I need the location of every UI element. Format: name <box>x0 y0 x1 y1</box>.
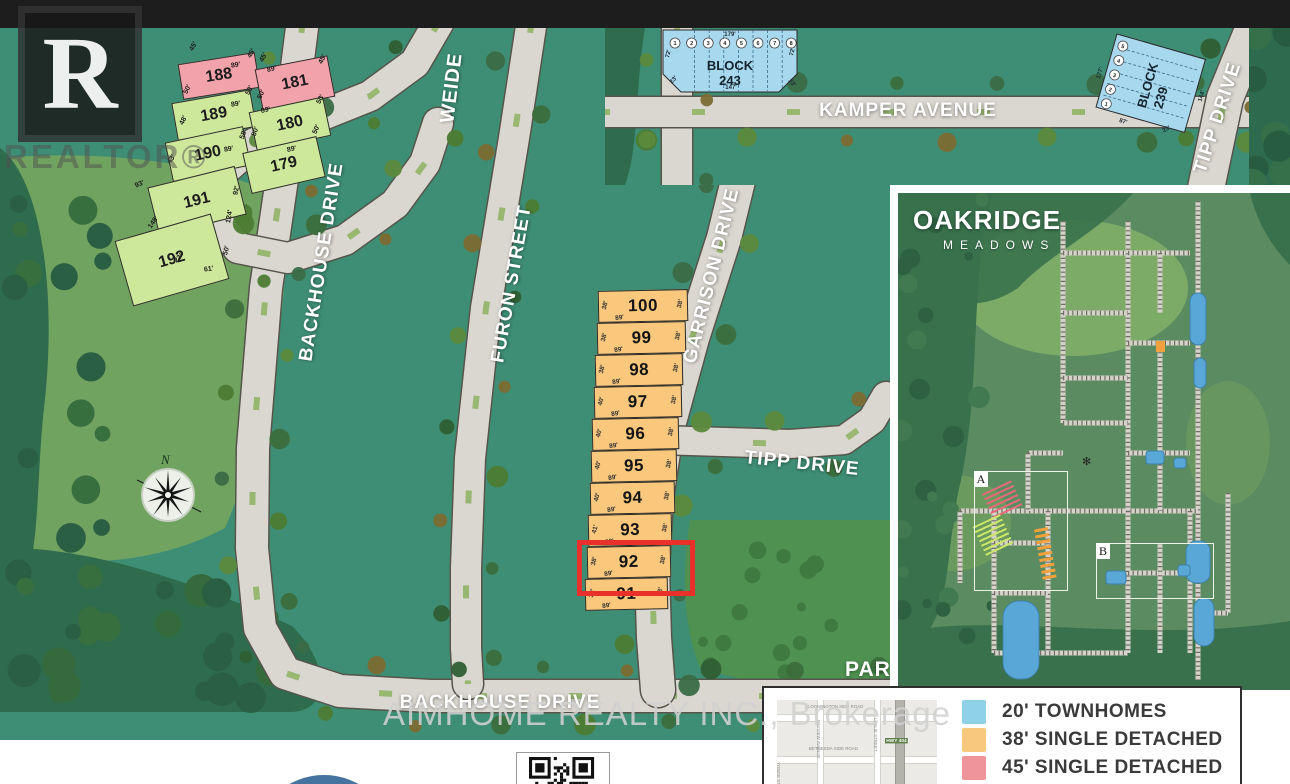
lot-dim-left: 40' <box>593 492 602 502</box>
dimension-label: 61' <box>204 265 214 273</box>
oakridge-meadows-logo: OAKRIDGE MEADOWS <box>913 205 1061 252</box>
legend-swatch <box>962 756 986 780</box>
lot-99: 9938'38'89' <box>596 321 686 355</box>
lot-dim-width: 89' <box>611 410 621 418</box>
lot-number: 98 <box>596 359 683 381</box>
lot-98: 9838'38'89' <box>595 353 684 387</box>
svg-text:BLOCK: BLOCK <box>707 58 754 73</box>
area-a-label: A <box>974 471 988 487</box>
hwy-404-badge: HWY 404 <box>885 738 908 743</box>
lot-number: 99 <box>597 327 685 349</box>
lot-95: 9540'38'89' <box>591 449 678 483</box>
svg-text:N: N <box>160 452 171 467</box>
road-label: YONGE STREET <box>777 762 781 784</box>
svg-text:8: 8 <box>790 41 793 47</box>
street-label-kamper-avenue: KAMPER AVENUE <box>819 100 997 122</box>
realtor-logo-letter: R <box>42 22 117 126</box>
legend-label: 38' SINGLE DETACHED <box>1002 729 1223 751</box>
lot-dim-width: 89' <box>602 602 612 610</box>
lot-number: 97 <box>595 391 681 413</box>
lot-dim-width: 89' <box>615 314 625 322</box>
qr-code <box>516 752 610 784</box>
lot-94: 9440'38'89' <box>589 481 675 515</box>
realtor-logo: R <box>18 6 142 142</box>
lot-dim-right: 38' <box>670 395 679 405</box>
lot-dim-width: 89' <box>608 474 618 482</box>
tree-sliver <box>1249 28 1290 185</box>
park-label: PAR <box>845 658 890 682</box>
svg-text:147': 147' <box>725 85 737 91</box>
area-b-label: B <box>1096 543 1110 559</box>
svg-text:✻: ✻ <box>1082 456 1091 468</box>
svg-text:179': 179' <box>724 32 736 38</box>
lot-dim-left: 38' <box>600 332 609 342</box>
area-box-a: A <box>974 471 1068 591</box>
lot-100: 10038'38'89' <box>598 289 689 323</box>
lot-number: 94 <box>590 487 674 509</box>
svg-text:1: 1 <box>673 41 676 47</box>
highlighted-lot-92-outline <box>577 540 695 596</box>
meadows-logo-text: MEADOWS <box>943 238 1061 252</box>
svg-text:6: 6 <box>756 41 759 47</box>
lot-number: 93 <box>589 519 672 541</box>
lot-number: 96 <box>593 423 678 445</box>
location-road <box>777 756 937 764</box>
compass-rose-icon: N <box>133 452 203 532</box>
site-plan-page: 18818118918019017919119210038'38'89'9938… <box>0 0 1290 784</box>
partial-circle-logo <box>256 775 392 784</box>
top-black-bar <box>0 0 1290 28</box>
lot-dim-width: 89' <box>613 346 623 354</box>
realtor-watermark-text: REALTOR® <box>4 138 209 176</box>
legend-label: 45' SINGLE DETACHED <box>1002 757 1223 779</box>
lot-97: 9740'38'89' <box>593 385 681 419</box>
oakridge-logo-text: OAKRIDGE <box>913 205 1061 236</box>
legend-swatch <box>962 700 986 724</box>
legend-item: 38' SINGLE DETACHED <box>962 728 1223 752</box>
svg-text:3: 3 <box>707 41 710 47</box>
legend-item: 45' SINGLE DETACHED <box>962 756 1223 780</box>
lot-number: 95 <box>592 455 676 477</box>
lot-dim-width: 89' <box>612 378 622 386</box>
lot-96: 9640'38'89' <box>592 417 679 451</box>
legend-swatch <box>962 728 986 752</box>
svg-text:2: 2 <box>690 41 693 47</box>
sliver-trees <box>1249 28 1290 185</box>
legend-label: 20' TOWNHOMES <box>1002 701 1167 723</box>
area-box-b: B <box>1096 543 1214 599</box>
legend-item: 20' TOWNHOMES <box>962 700 1167 724</box>
svg-text:5: 5 <box>740 41 743 47</box>
lot-dim-width: 89' <box>606 506 616 514</box>
inset-orange-marker <box>1156 341 1165 352</box>
lot-number: 100 <box>599 295 687 317</box>
svg-text:7: 7 <box>773 41 776 47</box>
lot-dim-width: 89' <box>609 442 619 450</box>
inset-terrain: ✻ <box>898 193 1290 690</box>
brokerage-watermark: AIMHOME REALTY INC., Brokerage <box>383 695 951 733</box>
community-overview-inset: ✻ OAKRIDGE MEADOWS A B <box>898 193 1290 690</box>
